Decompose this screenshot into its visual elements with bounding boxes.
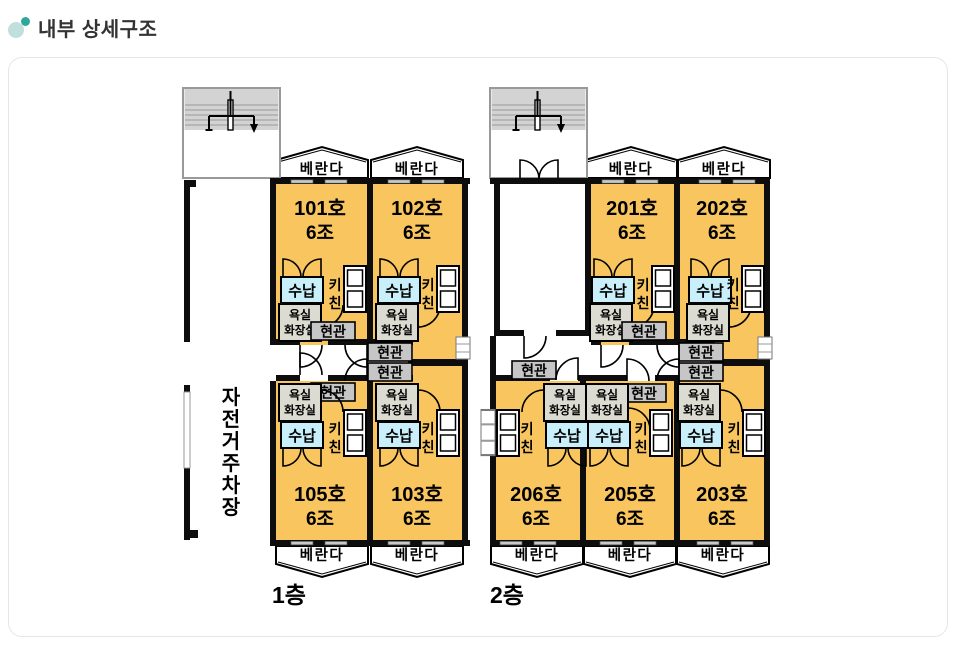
staircase-floor2 — [490, 88, 587, 178]
svg-text:주: 주 — [222, 453, 240, 475]
entrance-box — [368, 343, 412, 361]
room-size: 6조 — [616, 509, 644, 530]
room-size: 6조 — [708, 509, 736, 530]
entrance-box — [622, 322, 666, 340]
kitchen-counter — [437, 266, 459, 312]
staircase-floor1 — [183, 88, 280, 178]
floor1-plan: 101호 6조 102호 6조 — [183, 88, 470, 608]
page: 내부 상세구조 키친 수납 욕실화장실 현관 베란다 베란다 — [0, 0, 956, 645]
room-size: 6조 — [403, 223, 431, 244]
room-number: 102호 — [391, 197, 443, 220]
bathroom-box — [678, 384, 720, 421]
kitchen-counter — [650, 410, 672, 456]
floor2-label: 2층 — [490, 582, 524, 608]
kitchen-counter — [497, 410, 519, 456]
veranda-201 — [585, 147, 677, 178]
bathroom-box — [544, 384, 586, 421]
room-number: 105호 — [294, 483, 346, 506]
room-number: 101호 — [294, 197, 346, 220]
parking-wall-window — [184, 392, 190, 468]
floorplan-canvas: 키친 수납 욕실화장실 현관 베란다 베란다 — [8, 57, 948, 635]
veranda-203 — [677, 546, 769, 577]
entrance-box — [512, 361, 556, 379]
storage-box — [281, 277, 323, 303]
room-size: 6조 — [306, 223, 334, 244]
veranda-103 — [371, 546, 463, 577]
section-header: 내부 상세구조 — [8, 12, 157, 42]
room-size: 6조 — [708, 223, 736, 244]
storage-box — [689, 277, 731, 303]
room-size: 6조 — [522, 509, 550, 530]
kitchen-counter — [344, 410, 366, 456]
entrance-box — [679, 343, 723, 361]
room-size: 6조 — [403, 509, 431, 530]
storage-box — [588, 422, 630, 448]
floor1-label: 1층 — [272, 582, 306, 608]
kitchen-counter — [437, 410, 459, 456]
veranda-102 — [371, 147, 463, 178]
bicycle-parking-label: 자 전 거 주 차 장 — [222, 386, 241, 519]
room-number: 202호 — [696, 197, 748, 220]
bathroom-box — [279, 384, 321, 421]
storage-box — [592, 277, 634, 303]
room-number: 206호 — [510, 483, 562, 506]
bathroom-box — [586, 384, 628, 421]
veranda-205 — [584, 546, 676, 577]
svg-text:자: 자 — [222, 386, 241, 409]
entrance-box — [311, 322, 355, 340]
kitchen-counter — [652, 266, 674, 312]
veranda-105 — [276, 546, 368, 577]
room-number: 203호 — [696, 483, 748, 506]
kitchen-counter — [743, 410, 765, 456]
veranda-202 — [678, 147, 770, 178]
bathroom-box — [376, 384, 418, 421]
entrance-box — [368, 363, 412, 381]
kitchen-counter — [742, 266, 764, 312]
room-size: 6조 — [306, 509, 334, 530]
room-number: 201호 — [606, 197, 658, 220]
floor2-plan: 201호 6조 202호 6조 — [481, 88, 772, 608]
storage-box — [378, 422, 420, 448]
svg-text:거: 거 — [222, 430, 240, 453]
section-bullet-icon — [8, 16, 30, 38]
bathroom-box — [376, 304, 418, 341]
room-number: 205호 — [604, 483, 656, 506]
storage-box — [680, 422, 722, 448]
svg-text:전: 전 — [222, 408, 240, 431]
kitchen-counter — [344, 266, 366, 312]
storage-box — [378, 277, 420, 303]
svg-text:장: 장 — [222, 496, 241, 519]
svg-text:차: 차 — [222, 474, 241, 497]
storage-box — [281, 422, 323, 448]
entrance-box — [679, 363, 723, 381]
room-number: 103호 — [391, 483, 443, 506]
veranda-101 — [276, 147, 368, 178]
room-size: 6조 — [618, 223, 646, 244]
veranda-206 — [491, 546, 583, 577]
page-title: 내부 상세구조 — [38, 13, 157, 42]
storage-box — [546, 422, 588, 448]
bathroom-box — [687, 304, 729, 341]
